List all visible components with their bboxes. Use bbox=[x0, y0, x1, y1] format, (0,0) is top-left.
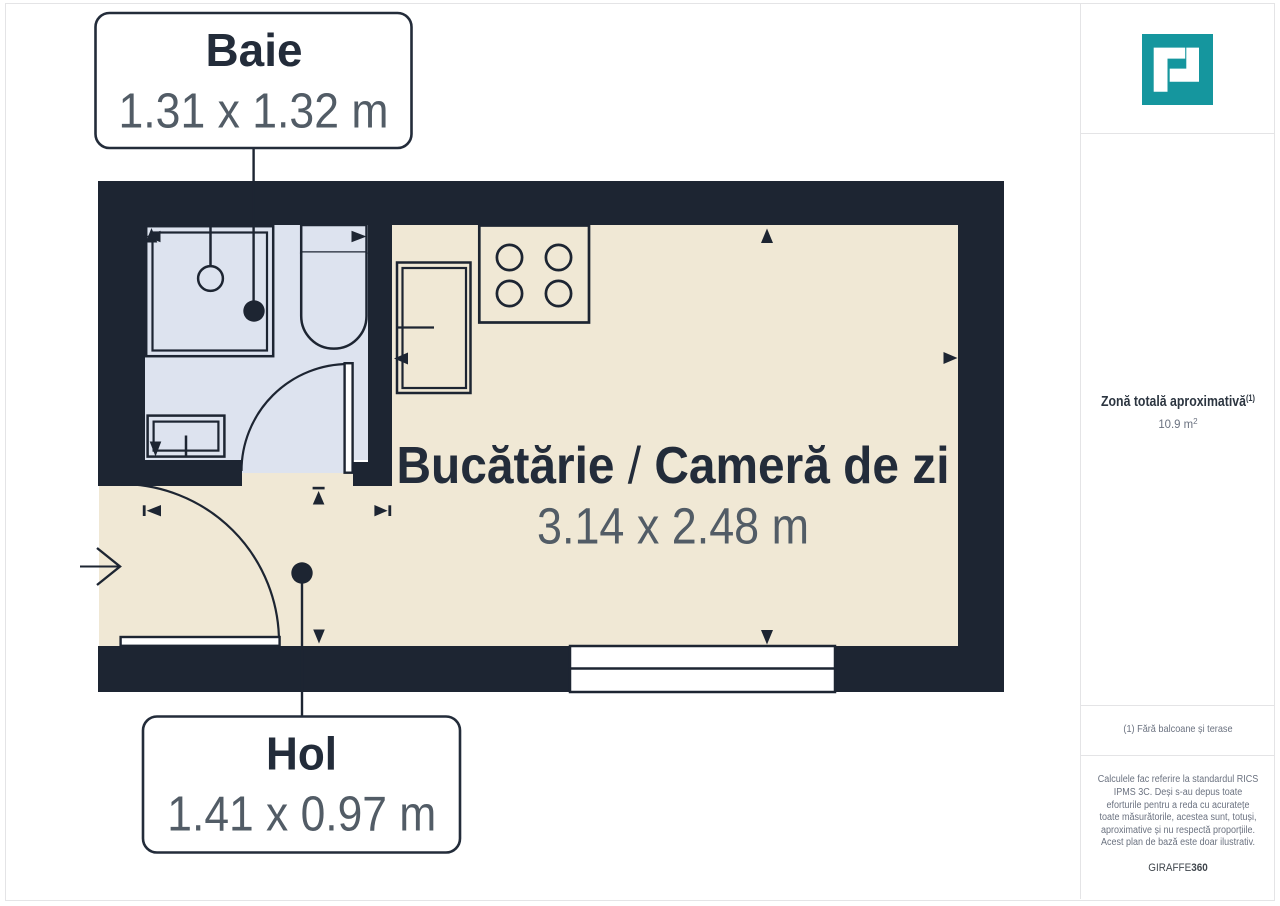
svg-text:Hol: Hol bbox=[266, 728, 337, 780]
svg-text:1.41 x 0.97 m: 1.41 x 0.97 m bbox=[167, 787, 436, 841]
svg-text:Bucătărie / Cameră de zi: Bucătărie / Cameră de zi bbox=[397, 437, 950, 495]
svg-text:Baie: Baie bbox=[206, 24, 303, 76]
svg-text:3.14 x 2.48 m: 3.14 x 2.48 m bbox=[537, 498, 809, 555]
svg-text:1.31 x 1.32 m: 1.31 x 1.32 m bbox=[119, 85, 389, 139]
